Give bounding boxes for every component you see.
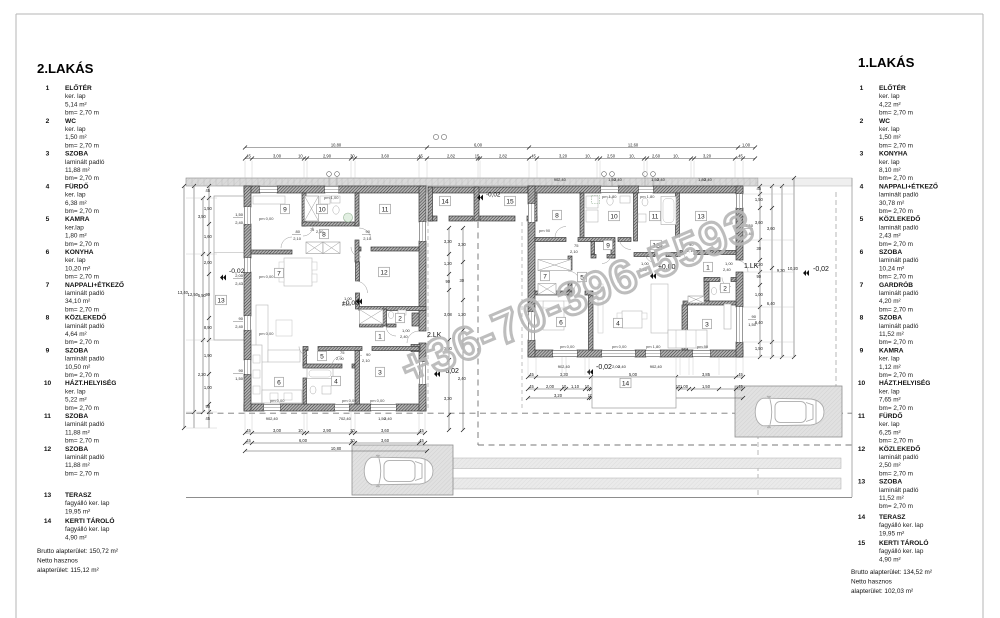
svg-text:TERASZ: TERASZ [879,514,905,521]
svg-text:bm= 2,70 m: bm= 2,70 m [879,372,913,379]
svg-text:13: 13 [858,479,866,486]
svg-text:KÖZLEKEDŐ: KÖZLEKEDŐ [879,444,920,453]
svg-text:NAPPALI+ÉTKEZŐ: NAPPALI+ÉTKEZŐ [65,280,124,289]
svg-text:1,90: 1,90 [204,353,213,358]
svg-text:10,: 10, [298,153,304,158]
svg-text:9: 9 [46,347,50,354]
svg-text:12: 12 [44,446,52,453]
svg-text:3,00: 3,00 [273,428,282,433]
svg-text:2,40: 2,40 [614,177,623,182]
svg-text:10,20: 10,20 [788,266,799,271]
svg-text:Brutto alapterület: 134,52 m²: Brutto alapterület: 134,52 m² [851,569,932,576]
svg-text:FÜRDŐ: FÜRDŐ [65,181,88,190]
svg-text:ker. lap: ker. lap [879,126,900,133]
svg-text:6,40: 6,40 [767,301,776,306]
svg-text:KÖZLEKEDŐ: KÖZLEKEDŐ [65,313,106,322]
svg-text:ker.lap: ker.lap [65,224,84,231]
svg-text:KAMRA: KAMRA [65,216,90,223]
svg-text:Brutto alapterület: 150,72 m²: Brutto alapterület: 150,72 m² [37,548,118,555]
svg-text:90: 90 [366,229,371,234]
svg-text:alapterület: 115,12 m²: alapterület: 115,12 m² [37,567,99,574]
svg-text:12: 12 [380,269,388,276]
svg-text:bm= 2,70 m: bm= 2,70 m [65,175,99,182]
svg-text:14: 14 [441,198,449,205]
svg-text:1,50 m²: 1,50 m² [879,134,901,141]
svg-text:10,: 10, [629,153,635,158]
svg-text:fagyálló ker. lap: fagyálló ker. lap [879,522,924,529]
svg-text:Netto hasznos: Netto hasznos [851,578,892,585]
svg-text:5: 5 [320,353,324,360]
svg-text:2,40: 2,40 [235,220,244,225]
svg-text:1: 1 [860,85,864,92]
svg-text:HÁZT.HELYISÉG: HÁZT.HELYISÉG [879,378,930,387]
svg-text:2: 2 [398,315,402,322]
svg-text:1,00: 1,00 [742,142,751,147]
svg-text:alapterület: 102,03 m²: alapterület: 102,03 m² [851,588,913,595]
svg-text:bm= 2,70 m: bm= 2,70 m [65,470,99,477]
svg-text:8,90: 8,90 [204,325,213,330]
svg-text:4: 4 [46,183,50,190]
svg-text:1,50: 1,50 [702,384,711,389]
svg-text:1,50: 1,50 [204,206,213,211]
svg-text:,45: ,45 [245,428,251,433]
svg-text:TERASZ: TERASZ [65,492,91,499]
svg-text:2,90: 2,90 [336,356,345,361]
svg-text:5,14 m²: 5,14 m² [65,101,87,108]
svg-text:10: 10 [610,213,618,220]
svg-text:30: 30 [460,278,465,283]
svg-text:2: 2 [860,118,864,125]
svg-text:2,20: 2,20 [198,372,207,377]
svg-text:KONYHA: KONYHA [65,249,94,256]
svg-text:3: 3 [705,321,709,328]
svg-text:-0,02: -0,02 [486,192,501,199]
svg-text:45: 45 [206,188,211,193]
svg-text:bm= 2,70 m: bm= 2,70 m [65,241,99,248]
svg-text:ker. lap: ker. lap [65,257,86,264]
svg-text:WC: WC [65,118,76,125]
svg-text:fagyálló ker. lap: fagyálló ker. lap [65,526,110,533]
svg-text:10,80: 10,80 [331,446,342,451]
svg-text:90: 90 [206,404,211,409]
svg-text:3,60: 3,60 [381,428,390,433]
svg-text:4: 4 [616,320,620,327]
svg-text:1,50 m²: 1,50 m² [65,134,87,141]
svg-text:bm= 2,70 m: bm= 2,70 m [879,405,913,412]
svg-text:9: 9 [860,347,864,354]
svg-text:1,00: 1,00 [755,292,764,297]
svg-text:bm= 2,70 m: bm= 2,70 m [65,142,99,149]
svg-text:1,12 m²: 1,12 m² [879,364,901,371]
svg-text:15: 15 [506,198,514,205]
svg-text:pm 1,80: pm 1,80 [602,194,617,199]
svg-text:laminált padló: laminált padló [879,224,919,231]
svg-text:SZOBA: SZOBA [879,249,902,256]
svg-text:2,82: 2,82 [499,153,508,158]
svg-text:3,20: 3,20 [559,153,568,158]
svg-text:bm= 2,70 m: bm= 2,70 m [879,438,913,445]
svg-text:bm= 2,70 m: bm= 2,70 m [879,142,913,149]
svg-text:SZOBA: SZOBA [879,479,902,486]
svg-text:7: 7 [277,270,281,277]
svg-text:laminált padló: laminált padló [65,290,105,297]
svg-text:1,50: 1,50 [235,376,244,381]
svg-text:2: 2 [723,285,727,292]
svg-text:bm= 2,70 m: bm= 2,70 m [879,175,913,182]
svg-text:11: 11 [652,213,659,220]
svg-text:2,50: 2,50 [607,153,616,158]
svg-text:pm 1,00: pm 1,00 [324,195,339,200]
svg-text:laminált padló: laminált padló [65,421,105,428]
svg-text:bm= 2,70 m: bm= 2,70 m [65,110,99,117]
svg-text:15: 15 [858,540,866,547]
svg-text:19,95 m²: 19,95 m² [65,508,90,515]
svg-text:2,40: 2,40 [654,364,663,369]
svg-text:2,40: 2,40 [458,376,467,381]
svg-text:3: 3 [860,151,864,158]
svg-text:45: 45 [757,186,762,191]
svg-text:10,20 m²: 10,20 m² [65,265,90,272]
svg-text:6,00: 6,00 [474,142,483,147]
svg-text:3,20: 3,20 [703,153,712,158]
svg-text:,45: ,45 [417,153,423,158]
svg-text:7: 7 [543,273,547,280]
svg-text:bm= 2,70 m: bm= 2,70 m [879,503,913,510]
svg-text:-0,02: -0,02 [596,364,612,371]
svg-text:10: 10 [585,384,590,389]
svg-text:NAPPALI+ÉTKEZŐ: NAPPALI+ÉTKEZŐ [879,181,938,190]
svg-text:7: 7 [860,282,864,289]
svg-text:ker. lap: ker. lap [65,388,86,395]
svg-text:75: 75 [574,243,579,248]
svg-text:11,88 m²: 11,88 m² [65,462,90,469]
svg-text:15: 15 [475,153,480,158]
svg-text:ker. lap: ker. lap [65,126,86,133]
svg-text:2,00: 2,00 [204,260,213,265]
svg-text:3,85: 3,85 [702,372,711,377]
svg-text:bm= 2,70 m: bm= 2,70 m [65,274,99,281]
svg-text:19,95 m²: 19,95 m² [879,530,904,537]
svg-text:KÖZLEKEDŐ: KÖZLEKEDŐ [879,214,920,223]
svg-text:ker. lap: ker. lap [879,388,900,395]
svg-text:4: 4 [860,183,864,190]
svg-text:1,10: 1,10 [571,384,580,389]
svg-text:6,25 m²: 6,25 m² [879,429,901,436]
svg-text:4,90 m²: 4,90 m² [65,534,87,541]
svg-text:4,22 m²: 4,22 m² [879,101,901,108]
svg-text:,45: ,45 [737,384,743,389]
svg-text:,45: ,45 [418,438,424,443]
svg-text:3,30: 3,30 [458,242,467,247]
svg-text:SZOBA: SZOBA [65,446,88,453]
svg-text:4,90 m²: 4,90 m² [879,556,901,563]
svg-text:90: 90 [239,368,244,373]
svg-text:11: 11 [44,413,51,420]
svg-text:45: 45 [206,416,211,421]
svg-text:2,40: 2,40 [562,364,571,369]
svg-text:2,60: 2,60 [652,153,661,158]
svg-text:11: 11 [858,413,865,420]
svg-text:KERTI TÁROLÓ: KERTI TÁROLÓ [879,538,928,547]
svg-text:3: 3 [46,151,50,158]
svg-text:6,38 m²: 6,38 m² [65,200,87,207]
svg-text:11,52 m²: 11,52 m² [879,495,904,502]
svg-text:10,80: 10,80 [331,142,342,147]
svg-text:14: 14 [858,514,866,521]
svg-text:1.LAKÁS: 1.LAKÁS [858,55,915,70]
svg-text:1,50: 1,50 [748,322,757,327]
svg-text:9: 9 [283,206,287,213]
svg-text:bm= 2,70 m: bm= 2,70 m [879,241,913,248]
svg-text:laminált padló: laminált padló [65,159,105,166]
svg-text:5: 5 [860,216,864,223]
svg-text:3,30: 3,30 [444,239,453,244]
svg-text:1: 1 [46,85,50,92]
svg-text:2,40: 2,40 [235,324,244,329]
svg-text:laminált padló: laminált padló [879,323,919,330]
svg-text:±0,00: ±0,00 [342,300,359,307]
svg-text:2,40: 2,40 [618,364,627,369]
svg-text:5: 5 [46,216,50,223]
svg-text:2,40: 2,40 [343,416,352,421]
svg-text:ker. lap: ker. lap [879,356,900,363]
svg-text:pm 90: pm 90 [697,344,709,349]
svg-text:1,00: 1,00 [680,384,689,389]
svg-text:pm 90: pm 90 [539,228,551,233]
svg-text:2,43: 2,43 [235,281,244,286]
svg-text:4,20 m²: 4,20 m² [879,298,901,305]
svg-text:90: 90 [366,352,371,357]
svg-text:1,80 m²: 1,80 m² [65,233,87,240]
svg-text:2,43 m²: 2,43 m² [879,233,901,240]
svg-text:75: 75 [340,350,345,355]
svg-text:10: 10 [858,380,866,387]
svg-text:8: 8 [555,212,559,219]
svg-text:1,50: 1,50 [755,197,764,202]
svg-text:2,40: 2,40 [558,177,567,182]
svg-text:HÁZT.HELYISÉG: HÁZT.HELYISÉG [65,378,116,387]
svg-text:3,60: 3,60 [755,220,764,225]
svg-text:,45: ,45 [737,372,743,377]
svg-text:laminált padló: laminált padló [879,487,919,494]
svg-text:-0,02: -0,02 [813,266,829,273]
svg-text:34,10 m²: 34,10 m² [65,298,90,305]
svg-text:,45: ,45 [245,153,251,158]
svg-text:ker. lap: ker. lap [879,93,900,100]
svg-text:pm 0,00: pm 0,00 [370,398,385,403]
svg-text:1,00: 1,00 [402,328,411,333]
svg-text:Netto hasznos: Netto hasznos [37,557,78,564]
svg-text:2,40: 2,40 [270,416,279,421]
svg-text:2,90: 2,90 [323,153,332,158]
svg-text:6: 6 [860,249,864,256]
svg-text:3,30: 3,30 [444,396,453,401]
svg-text:bm= 2,70 m: bm= 2,70 m [879,274,913,281]
svg-text:laminált padló: laminált padló [879,192,919,199]
svg-text:10,24 m²: 10,24 m² [879,265,904,272]
svg-text:ker. lap: ker. lap [65,93,86,100]
svg-text:SZOBA: SZOBA [65,347,88,354]
svg-text:5,00: 5,00 [629,372,638,377]
svg-text:10,50 m²: 10,50 m² [65,364,90,371]
svg-text:12,60: 12,60 [628,142,639,147]
svg-text:8: 8 [860,315,864,322]
svg-text:KAMRA: KAMRA [879,347,904,354]
svg-text:1.LK: 1.LK [744,263,759,270]
svg-text:1,50: 1,50 [235,212,244,217]
svg-text:6,40: 6,40 [755,320,764,325]
svg-text:1,50: 1,50 [755,346,764,351]
svg-text:2,90: 2,90 [323,428,332,433]
svg-text:bm= 2,70 m: bm= 2,70 m [879,110,913,117]
svg-text:2,00: 2,00 [546,384,555,389]
svg-text:90: 90 [239,316,244,321]
svg-text:2,10: 2,10 [362,358,371,363]
svg-text:3,50: 3,50 [198,214,207,219]
svg-text:9: 9 [606,242,610,249]
svg-text:KERTI TÁROLÓ: KERTI TÁROLÓ [65,516,114,525]
svg-text:2,40: 2,40 [384,416,393,421]
svg-text:ker. lap: ker. lap [879,421,900,428]
svg-text:14: 14 [622,380,630,387]
svg-text:bm= 2,70 m: bm= 2,70 m [65,339,99,346]
svg-text:bm= 2,70 m: bm= 2,70 m [879,470,913,477]
svg-text:pm 0,00: pm 0,00 [612,344,627,349]
svg-text:2,40: 2,40 [657,177,666,182]
svg-text:bm= 2,70 m: bm= 2,70 m [65,405,99,412]
svg-text:ker. lap: ker. lap [879,159,900,166]
svg-text:pm 0,00: pm 0,00 [270,398,285,403]
svg-text:2,10: 2,10 [363,236,372,241]
svg-text:2,82: 2,82 [447,153,456,158]
svg-text:4: 4 [334,378,338,385]
svg-text:80: 80 [296,229,301,234]
svg-text:fagyálló ker. lap: fagyálló ker. lap [65,500,110,507]
svg-text:bm= 2,70 m: bm= 2,70 m [65,372,99,379]
svg-text:14: 14 [44,518,52,525]
svg-text:3,08: 3,08 [444,312,453,317]
svg-text:laminált padló: laminált padló [65,323,105,330]
svg-text:bm= 2,70 m: bm= 2,70 m [879,208,913,215]
svg-text:laminált padló: laminált padló [879,257,919,264]
svg-text:pm 0,00: pm 0,00 [259,331,274,336]
svg-text:ker. lap: ker. lap [65,192,86,199]
svg-text:2,40: 2,40 [723,267,732,272]
svg-text:2.LAKÁS: 2.LAKÁS [37,61,94,76]
svg-text:SZOBA: SZOBA [65,151,88,158]
svg-text:ELŐTÉR: ELŐTÉR [65,83,92,92]
svg-text:bm= 2,70 m: bm= 2,70 m [879,306,913,313]
svg-text:SZOBA: SZOBA [879,315,902,322]
svg-text:WC: WC [879,118,890,125]
svg-text:75: 75 [310,228,314,232]
svg-text:2,50 m²: 2,50 m² [879,462,901,469]
svg-text:13: 13 [217,297,225,304]
svg-text:GARDRÓB: GARDRÓB [879,280,913,289]
svg-text:3,60: 3,60 [381,153,390,158]
svg-text:2,10: 2,10 [316,230,323,234]
svg-text:FÜRDŐ: FÜRDŐ [879,411,902,420]
svg-text:SZOBA: SZOBA [65,413,88,420]
svg-text:2,40: 2,40 [704,177,713,182]
svg-text:bm= 2,70 m: bm= 2,70 m [65,438,99,445]
svg-text:3,30: 3,30 [560,372,569,377]
svg-text:laminált padló: laminált padló [879,454,919,461]
svg-text:2: 2 [46,118,50,125]
svg-text:laminált padló: laminált padló [879,290,919,297]
svg-text:pm 1,80: pm 1,80 [646,344,661,349]
svg-text:30,: 30, [350,153,356,158]
svg-text:6: 6 [46,249,50,256]
svg-text:90: 90 [757,274,762,279]
svg-text:7: 7 [46,282,50,289]
svg-text:2,10: 2,10 [293,236,302,241]
svg-text:2,10: 2,10 [570,249,579,254]
svg-text:-0,02: -0,02 [229,268,245,275]
svg-text:pm 0,00: pm 0,00 [259,274,274,279]
svg-text:6,00: 6,00 [299,438,308,443]
svg-text:5,22 m²: 5,22 m² [65,397,87,404]
svg-text:11,52 m²: 11,52 m² [879,331,904,338]
svg-text:8,10 m²: 8,10 m² [879,167,901,174]
svg-text:3: 3 [378,369,382,376]
svg-text:,45: ,45 [737,153,743,158]
svg-text:,45: ,45 [245,438,251,443]
svg-text:8: 8 [46,315,50,322]
svg-text:KONYHA: KONYHA [879,151,908,158]
svg-text:10,: 10, [585,153,591,158]
svg-text:1,00: 1,00 [204,385,213,390]
svg-text:laminált padló: laminált padló [65,356,105,363]
svg-text:4,64 m²: 4,64 m² [65,331,87,338]
svg-text:90: 90 [752,314,757,319]
svg-text:90: 90 [206,292,211,297]
svg-text:,45: ,45 [528,372,534,377]
svg-text:pm 0,00: pm 0,00 [259,216,274,221]
svg-text:7,65 m²: 7,65 m² [879,397,901,404]
svg-text:3,00: 3,00 [273,153,282,158]
svg-text:90: 90 [446,279,451,284]
svg-text:10: 10 [318,206,326,213]
svg-text:3,60: 3,60 [381,438,390,443]
svg-text:10: 10 [44,380,52,387]
svg-text:30,78 m²: 30,78 m² [879,200,904,207]
svg-text:10,: 10, [298,428,304,433]
svg-text:10,: 10, [673,153,679,158]
svg-text:11,88 m²: 11,88 m² [65,167,90,174]
svg-text:12: 12 [858,446,866,453]
svg-text:6: 6 [277,379,281,386]
svg-text:1: 1 [378,333,382,340]
svg-text:ELŐTÉR: ELŐTÉR [879,83,906,92]
svg-text:30,: 30, [350,438,356,443]
svg-text:9,30: 9,30 [777,268,786,273]
svg-text:laminált padló: laminált padló [65,454,105,461]
svg-text:1,60: 1,60 [204,234,213,239]
svg-text:pm 1,80: pm 1,80 [640,194,655,199]
svg-text:pm 0,00: pm 0,00 [342,398,357,403]
svg-text:bm= 2,70 m: bm= 2,70 m [65,208,99,215]
svg-text:11,88 m²: 11,88 m² [65,429,90,436]
svg-text:3,20: 3,20 [554,393,563,398]
svg-text:13: 13 [44,492,52,499]
svg-text:,45: ,45 [530,153,536,158]
svg-text:pm 0,00: pm 0,00 [560,344,575,349]
svg-text:1,00: 1,00 [725,261,734,266]
svg-text:11: 11 [382,206,389,213]
svg-text:fagyálló ker. lap: fagyálló ker. lap [879,548,924,555]
svg-text:bm= 2,70 m: bm= 2,70 m [65,306,99,313]
